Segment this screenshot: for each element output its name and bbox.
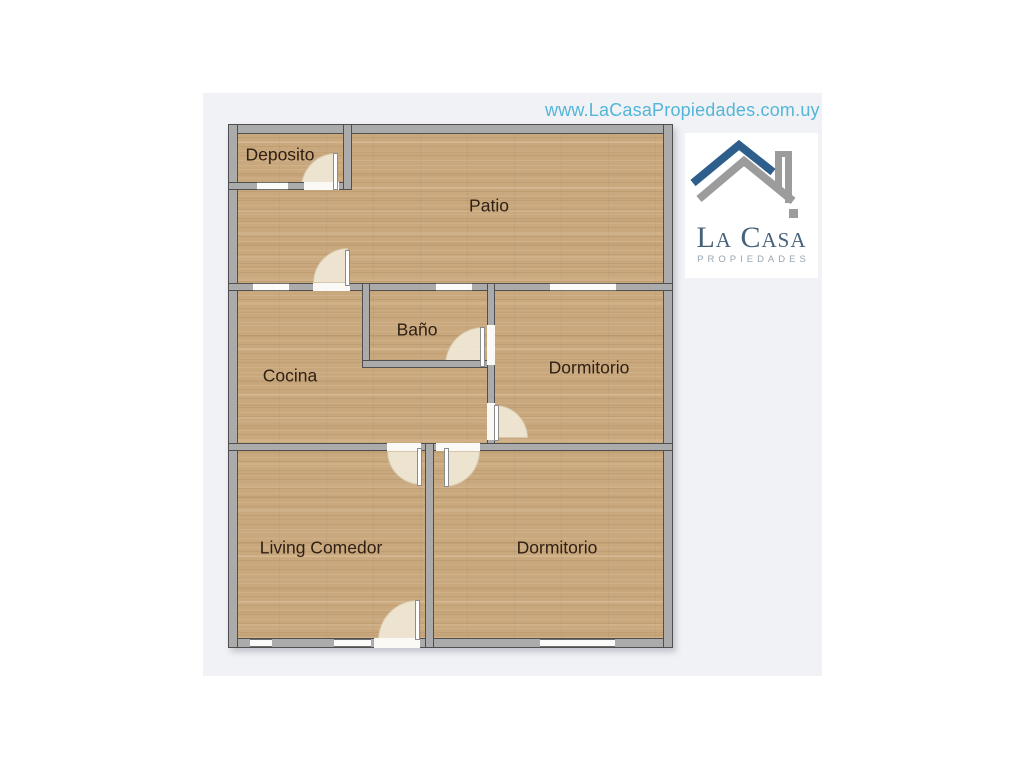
roof-icon	[688, 137, 815, 223]
door-leaf-patio	[345, 250, 350, 286]
door-opening-living	[387, 443, 421, 451]
logo-name: La Casa	[685, 223, 818, 253]
website-url: www.LaCasaPropiedades.com.uy	[545, 100, 822, 121]
window-bano-top	[436, 283, 472, 291]
agency-logo: La Casa PROPIEDADES	[685, 133, 818, 278]
window-cocina-top	[253, 283, 289, 291]
room-label-bano: Baño	[397, 320, 438, 341]
outer-wall-right	[663, 124, 673, 648]
window-dormitorio-2-bottom	[540, 639, 615, 647]
logo-subtitle: PROPIEDADES	[685, 254, 818, 265]
door-leaf-entrance	[415, 600, 420, 640]
room-label-dormitorio-1: Dormitorio	[549, 358, 630, 379]
room-label-deposito: Deposito	[245, 145, 314, 166]
wall-living-dormitorio-divider	[425, 443, 434, 648]
room-label-patio: Patio	[469, 196, 509, 217]
window-living-bottom-left	[250, 639, 272, 647]
wall-bano-bottom	[362, 360, 495, 368]
room-label-cocina: Cocina	[263, 366, 317, 387]
door-leaf-deposito	[333, 153, 338, 190]
door-leaf-dormitorio-1	[494, 405, 499, 441]
wall-deposito-right	[343, 124, 352, 190]
window-dormitorio-1-top	[550, 283, 616, 291]
outer-wall-top	[228, 124, 673, 134]
floor-plan: Deposito Patio Baño Cocina Dormitorio Li…	[228, 124, 673, 648]
wall-bano-left	[362, 283, 370, 368]
room-label-living-comedor: Living Comedor	[260, 538, 383, 559]
door-leaf-bano	[480, 327, 485, 367]
room-label-dormitorio-2: Dormitorio	[517, 538, 598, 559]
door-opening-bano	[487, 325, 495, 365]
window-deposito	[257, 182, 288, 190]
outer-wall-left	[228, 124, 238, 648]
door-leaf-dormitorio-2	[444, 448, 449, 487]
window-living-bottom-mid	[334, 639, 371, 647]
door-opening-entrance	[374, 638, 420, 648]
door-opening-dormitorio-2	[436, 443, 480, 451]
door-leaf-living	[417, 448, 422, 486]
